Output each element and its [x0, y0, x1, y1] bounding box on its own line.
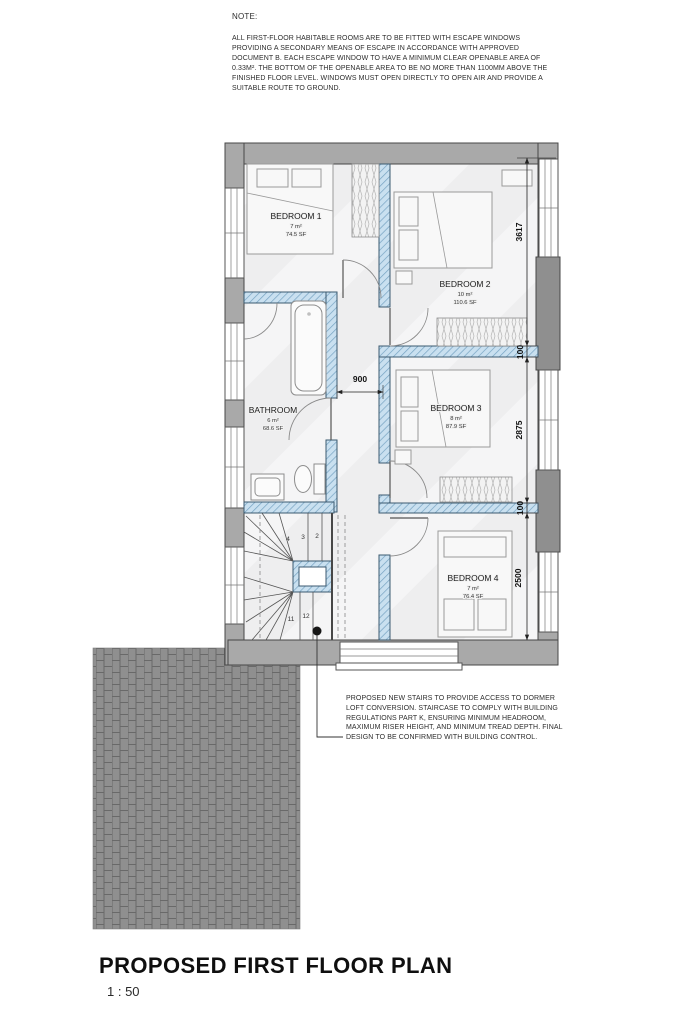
- svg-text:74.5 SF: 74.5 SF: [286, 232, 307, 238]
- paved-area: [93, 648, 300, 929]
- window-icon: [539, 159, 558, 257]
- svg-text:8 m²: 8 m²: [450, 416, 462, 422]
- svg-text:100: 100: [515, 501, 525, 515]
- svg-text:87.9 SF: 87.9 SF: [446, 424, 467, 430]
- stair-void: [293, 561, 332, 592]
- svg-text:4: 4: [286, 536, 290, 543]
- bed-bedroom-4: [438, 531, 512, 637]
- wardrobe-bedroom-2: [437, 318, 527, 346]
- drawing-title: PROPOSED FIRST FLOOR PLAN: [99, 953, 452, 979]
- window-icon: [539, 552, 558, 632]
- sheet: NOTE: ALL FIRST-FLOOR HABITABLE ROOMS AR…: [0, 0, 697, 1024]
- svg-text:110.6 SF: 110.6 SF: [453, 300, 477, 306]
- svg-text:12: 12: [302, 613, 310, 620]
- bed-bedroom-1: [247, 164, 333, 254]
- svg-text:BEDROOM 3: BEDROOM 3: [430, 403, 481, 413]
- svg-text:3617: 3617: [514, 222, 524, 241]
- floor-plan-drawing: 2 3 4 11 12: [0, 0, 697, 1024]
- sink-icon: [251, 474, 284, 500]
- nightstand: [396, 271, 412, 284]
- window-icon: [225, 323, 244, 400]
- shelf: [502, 170, 532, 186]
- window-sill: [336, 663, 462, 670]
- svg-text:2500: 2500: [513, 568, 523, 587]
- svg-text:BEDROOM 1: BEDROOM 1: [270, 211, 321, 221]
- svg-text:7 m²: 7 m²: [290, 224, 302, 230]
- svg-text:BEDROOM 2: BEDROOM 2: [439, 279, 490, 289]
- svg-text:76.4 SF: 76.4 SF: [463, 594, 484, 600]
- bathtub-icon: [291, 301, 326, 395]
- svg-text:10 m²: 10 m²: [458, 292, 473, 298]
- window-icon: [225, 188, 244, 278]
- svg-text:900: 900: [353, 374, 367, 384]
- windows-right: [539, 159, 558, 632]
- svg-text:2: 2: [315, 533, 319, 540]
- nightstand: [395, 450, 411, 464]
- svg-text:2875: 2875: [514, 420, 524, 439]
- window-icon: [225, 547, 244, 624]
- window-icon: [539, 370, 558, 470]
- svg-text:11: 11: [288, 616, 295, 623]
- right-wall-pier: [536, 470, 560, 552]
- svg-text:6 m²: 6 m²: [267, 418, 279, 424]
- svg-text:3: 3: [301, 534, 305, 541]
- wardrobe-bedroom-1: [352, 164, 379, 237]
- svg-text:BEDROOM 4: BEDROOM 4: [447, 573, 498, 583]
- right-wall-pier: [536, 257, 560, 370]
- svg-text:68.6 SF: 68.6 SF: [263, 426, 284, 432]
- svg-text:BATHROOM: BATHROOM: [249, 405, 297, 415]
- stairs-annotation: PROPOSED NEW STAIRS TO PROVIDE ACCESS TO…: [346, 694, 568, 743]
- window-icon: [225, 427, 244, 508]
- drawing-scale: 1 : 50: [107, 984, 140, 999]
- window-bottom: [336, 642, 462, 670]
- svg-text:100: 100: [515, 345, 525, 359]
- wardrobe-bedroom-3: [440, 477, 512, 502]
- svg-text:7 m²: 7 m²: [467, 586, 479, 592]
